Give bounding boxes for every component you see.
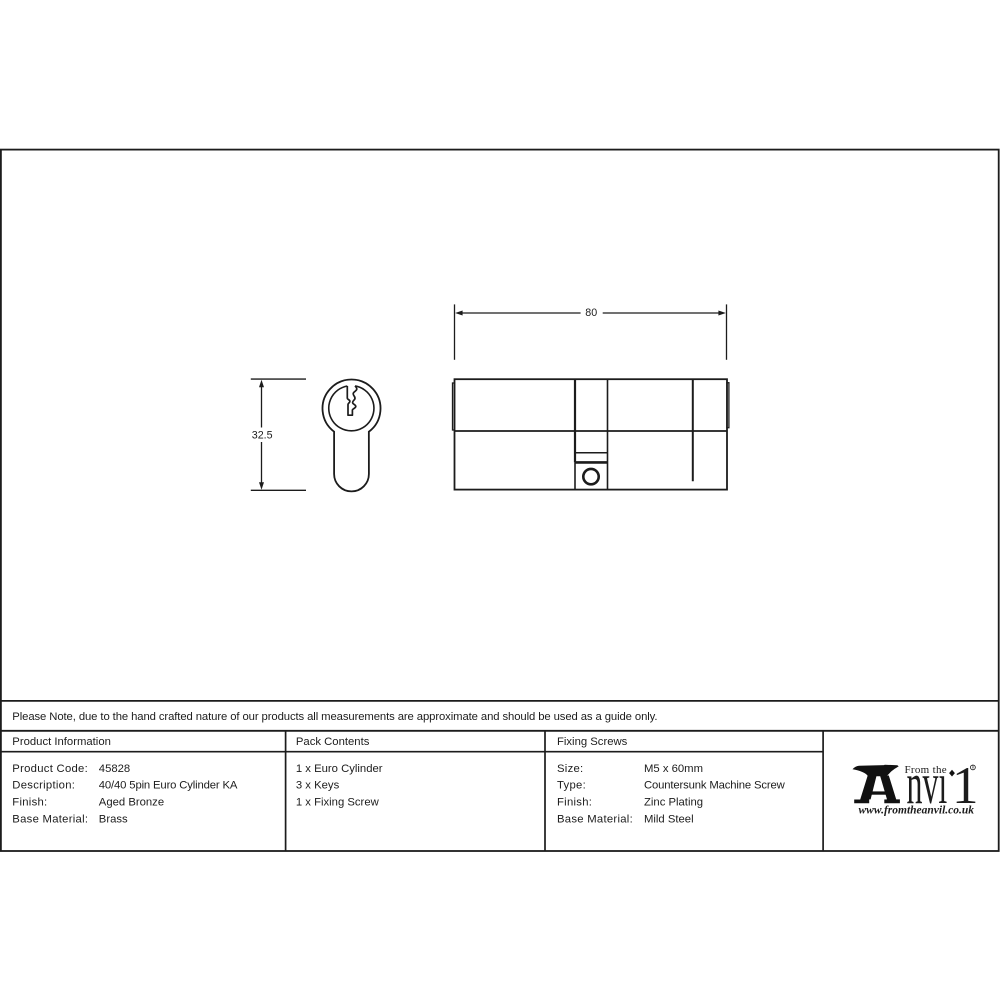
svg-text:Type:: Type: — [557, 780, 586, 792]
svg-text:Product Information: Product Information — [12, 736, 111, 748]
svg-text:32.5: 32.5 — [252, 429, 273, 441]
svg-text:Brass: Brass — [99, 813, 128, 825]
svg-text:Zinc Plating: Zinc Plating — [644, 797, 703, 809]
svg-text:40/40 5pin Euro Cylinder KA: 40/40 5pin Euro Cylinder KA — [99, 780, 238, 792]
svg-text:45828: 45828 — [99, 763, 130, 775]
svg-text:Base Material:: Base Material: — [557, 813, 633, 825]
svg-text:Product Code:: Product Code: — [12, 763, 88, 775]
svg-text:Mild Steel: Mild Steel — [644, 813, 694, 825]
svg-text:Finish:: Finish: — [12, 797, 47, 809]
svg-text:Fixing Screws: Fixing Screws — [557, 736, 628, 748]
svg-text:1 x Fixing Screw: 1 x Fixing Screw — [296, 797, 380, 809]
svg-text:Please Note, due to the hand c: Please Note, due to the hand crafted nat… — [12, 711, 657, 723]
svg-text:Aged Bronze: Aged Bronze — [99, 797, 164, 809]
svg-text:www.fromtheanvil.co.uk: www.fromtheanvil.co.uk — [859, 805, 975, 817]
svg-text:80: 80 — [585, 307, 597, 319]
svg-text:M5 x 60mm: M5 x 60mm — [644, 763, 703, 775]
svg-text:Size:: Size: — [557, 763, 583, 775]
svg-text:Base Material:: Base Material: — [12, 813, 88, 825]
svg-text:Countersunk Machine Screw: Countersunk Machine Screw — [644, 780, 786, 792]
svg-text:1 x Euro Cylinder: 1 x Euro Cylinder — [296, 763, 383, 775]
svg-text:Finish:: Finish: — [557, 797, 592, 809]
svg-text:3 x Keys: 3 x Keys — [296, 780, 340, 792]
svg-text:Pack Contents: Pack Contents — [296, 736, 370, 748]
svg-text:Description:: Description: — [12, 780, 75, 792]
